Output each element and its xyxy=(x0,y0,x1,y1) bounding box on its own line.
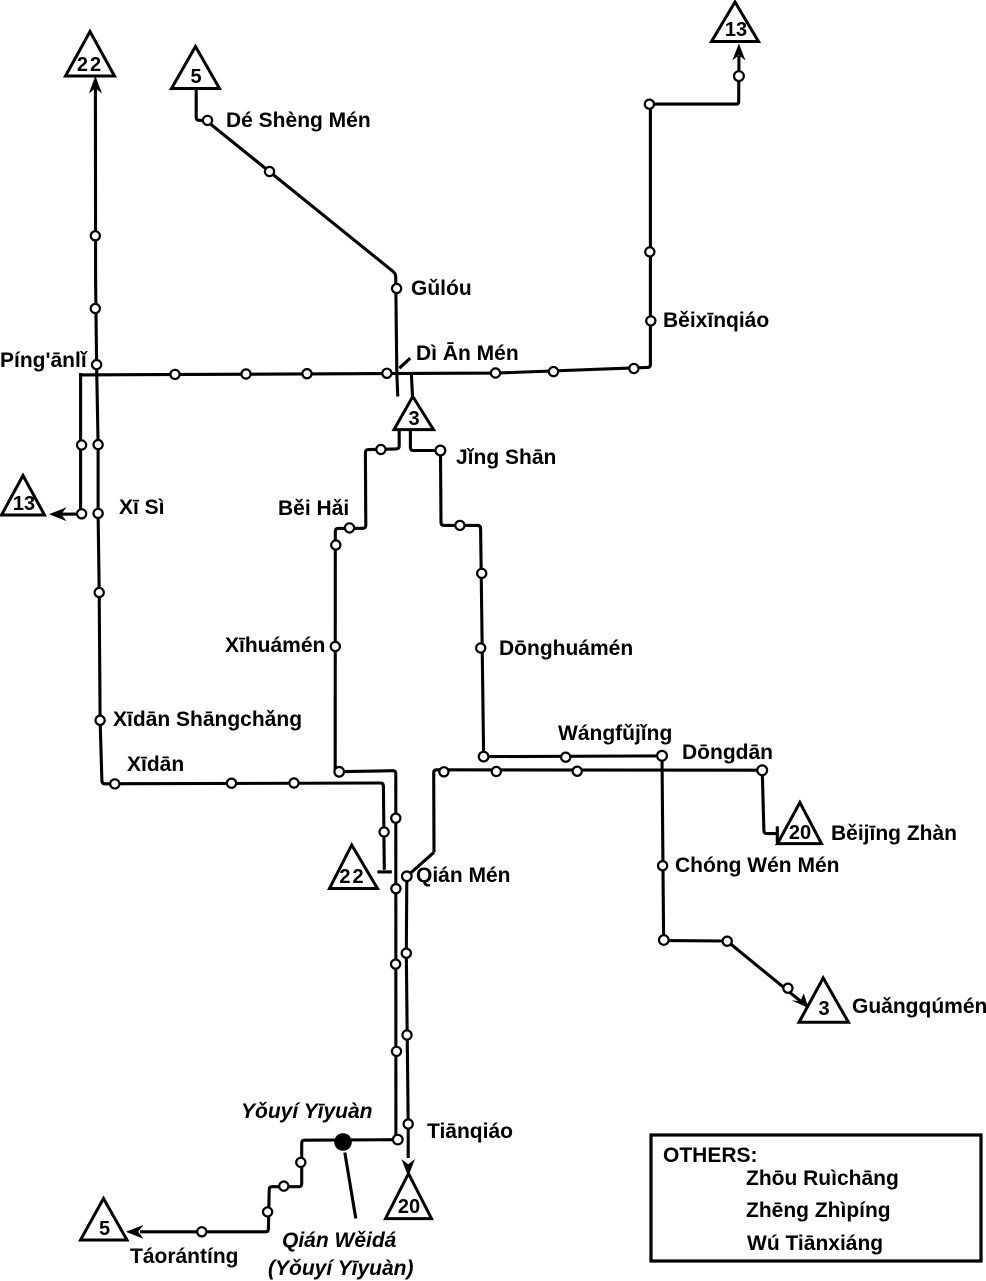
svg-text:Dōngdān: Dōngdān xyxy=(682,741,773,764)
svg-text:Qián Wěidá: Qián Wěidá xyxy=(282,1229,397,1252)
svg-text:20: 20 xyxy=(398,1196,420,1218)
svg-text:Wángfǔjǐng: Wángfǔjǐng xyxy=(558,722,672,745)
svg-text:Xīdān: Xīdān xyxy=(127,753,184,776)
svg-text:22: 22 xyxy=(339,866,365,888)
svg-text:Qián Mén: Qián Mén xyxy=(416,864,511,887)
svg-text:Jǐng Shān: Jǐng Shān xyxy=(456,446,556,469)
svg-text:Dì Ān Mén: Dì Ān Mén xyxy=(416,342,519,365)
svg-text:3: 3 xyxy=(408,408,419,430)
svg-text:Xīhuámén: Xīhuámén xyxy=(225,634,325,657)
svg-text:13: 13 xyxy=(725,19,747,41)
svg-text:22: 22 xyxy=(77,54,103,76)
svg-text:Běi Hǎi: Běi Hǎi xyxy=(278,497,349,520)
svg-text:Xīdān Shāngchǎng: Xīdān Shāngchǎng xyxy=(113,708,302,731)
svg-text:(Yǒuyí Yīyuàn): (Yǒuyí Yīyuàn) xyxy=(268,1257,413,1280)
svg-text:Guǎngqúmén: Guǎngqúmén xyxy=(852,995,986,1018)
svg-text:Píng'ānlǐ: Píng'ānlǐ xyxy=(0,349,88,372)
svg-text:13: 13 xyxy=(13,493,35,515)
svg-text:Táorántíng: Táorántíng xyxy=(130,1245,239,1268)
svg-text:Běijīng Zhàn: Běijīng Zhàn xyxy=(831,822,957,845)
svg-text:Běixīnqiáo: Běixīnqiáo xyxy=(663,309,769,332)
svg-text:OTHERS:: OTHERS: xyxy=(663,1144,758,1167)
svg-text:Wú Tiānxiáng: Wú Tiānxiáng xyxy=(747,1232,883,1255)
svg-text:5: 5 xyxy=(99,1218,110,1240)
svg-text:Xī Sì: Xī Sì xyxy=(119,496,165,519)
svg-text:Dé Shèng Mén: Dé Shèng Mén xyxy=(226,109,371,132)
svg-text:Zhēng Zhìpíng: Zhēng Zhìpíng xyxy=(746,1199,891,1222)
svg-text:3: 3 xyxy=(818,998,829,1020)
svg-text:Tiānqiáo: Tiānqiáo xyxy=(427,1120,513,1143)
svg-text:20: 20 xyxy=(789,822,811,844)
svg-text:Yǒuyí Yīyuàn: Yǒuyí Yīyuàn xyxy=(241,1100,373,1123)
svg-text:Gǔlóu: Gǔlóu xyxy=(411,277,472,300)
svg-text:Chóng Wén Mén: Chóng Wén Mén xyxy=(675,854,839,877)
svg-text:Dōnghuámén: Dōnghuámén xyxy=(499,637,633,660)
svg-text:5: 5 xyxy=(190,66,201,88)
svg-text:Zhōu Ruìchāng: Zhōu Ruìchāng xyxy=(746,1167,899,1190)
